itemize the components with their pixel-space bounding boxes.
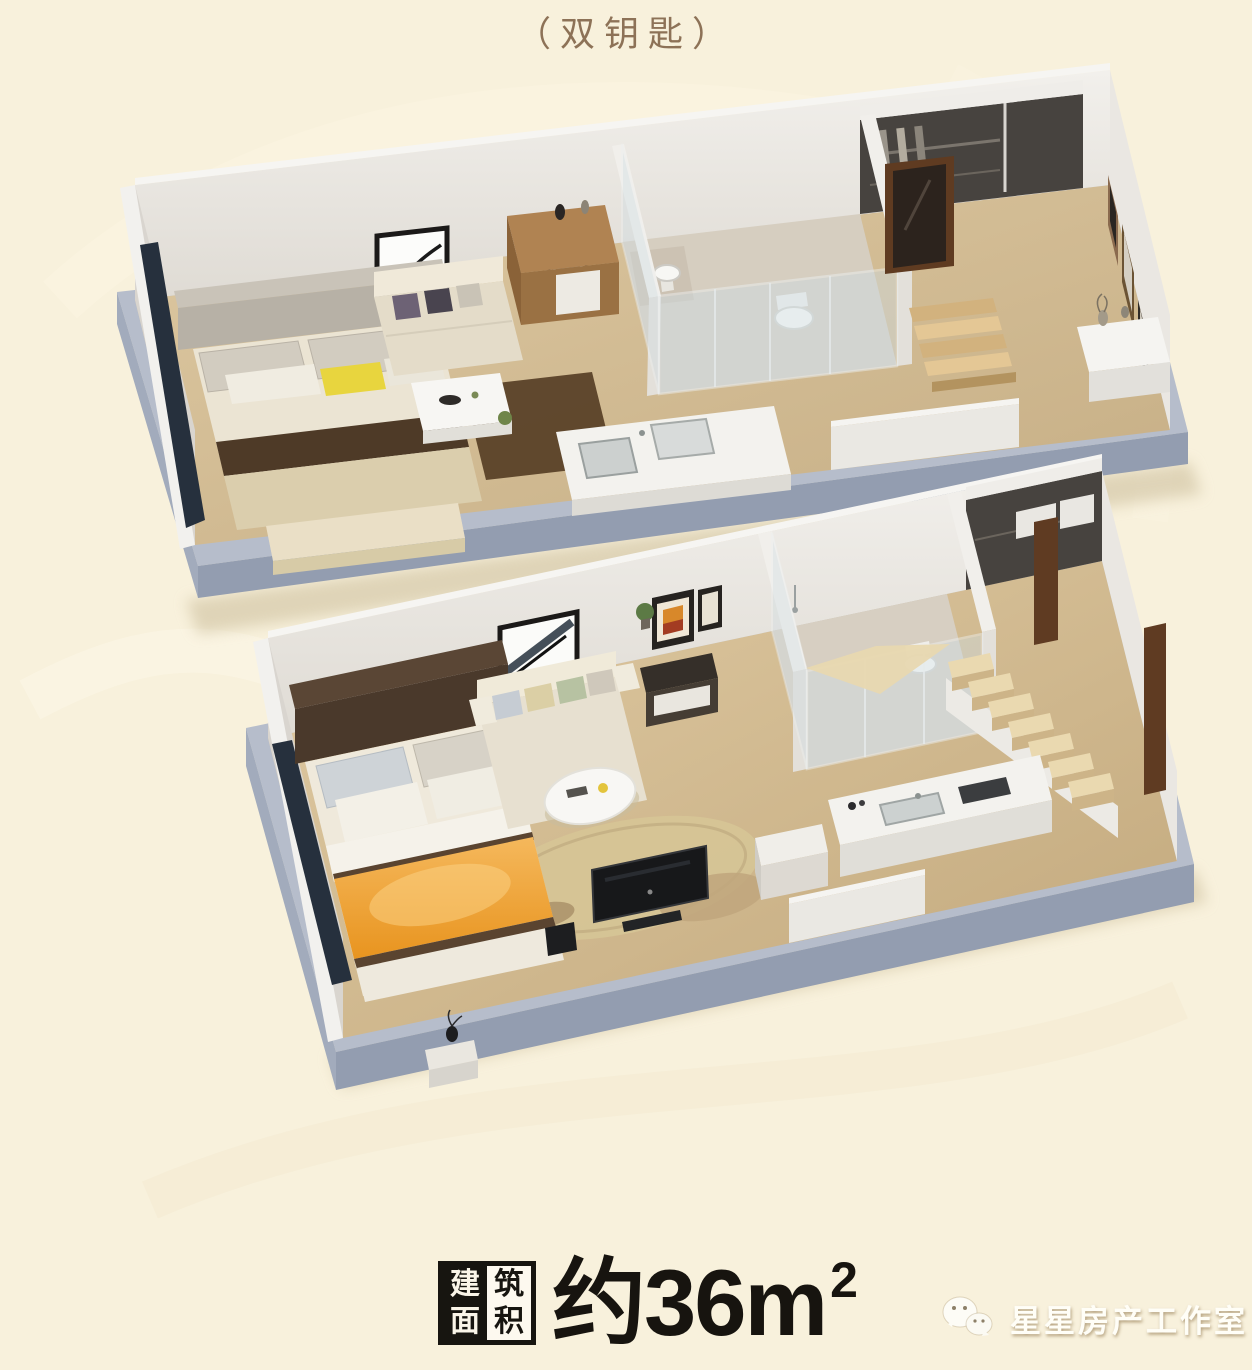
badge-char: 筑	[487, 1266, 531, 1303]
area-value: 约36m2	[552, 1256, 852, 1350]
area-number: 约36m	[552, 1250, 826, 1355]
area-badge: 建 筑 面 积	[438, 1261, 536, 1345]
watermark: 星星房产工作室	[938, 1294, 1248, 1342]
door-post	[1144, 623, 1166, 795]
cooktop	[651, 419, 714, 459]
page-title: （双钥匙）	[0, 6, 1252, 57]
badge-char: 面	[443, 1303, 487, 1340]
upper-door-frame	[885, 156, 954, 274]
upper-sofa	[374, 256, 523, 376]
watermark-text: 星星房产工作室	[1010, 1296, 1248, 1341]
badge-char: 建	[443, 1266, 487, 1303]
sink	[579, 438, 637, 478]
wechat-bubbles-icon	[938, 1294, 1000, 1342]
badge-char: 积	[487, 1303, 531, 1340]
washbasin	[654, 265, 680, 281]
door-post	[1034, 517, 1058, 645]
floor-plan-renders	[0, 0, 1252, 1370]
area-superscript: 2	[830, 1252, 856, 1308]
upper-sideboard	[507, 200, 619, 325]
upper-coffee-table	[411, 373, 512, 444]
poster: （双钥匙） 建 筑 面 积 约36m2 星星房产工作室	[0, 0, 1252, 1370]
area-info: 建 筑 面 积 约36m2	[438, 1256, 852, 1350]
